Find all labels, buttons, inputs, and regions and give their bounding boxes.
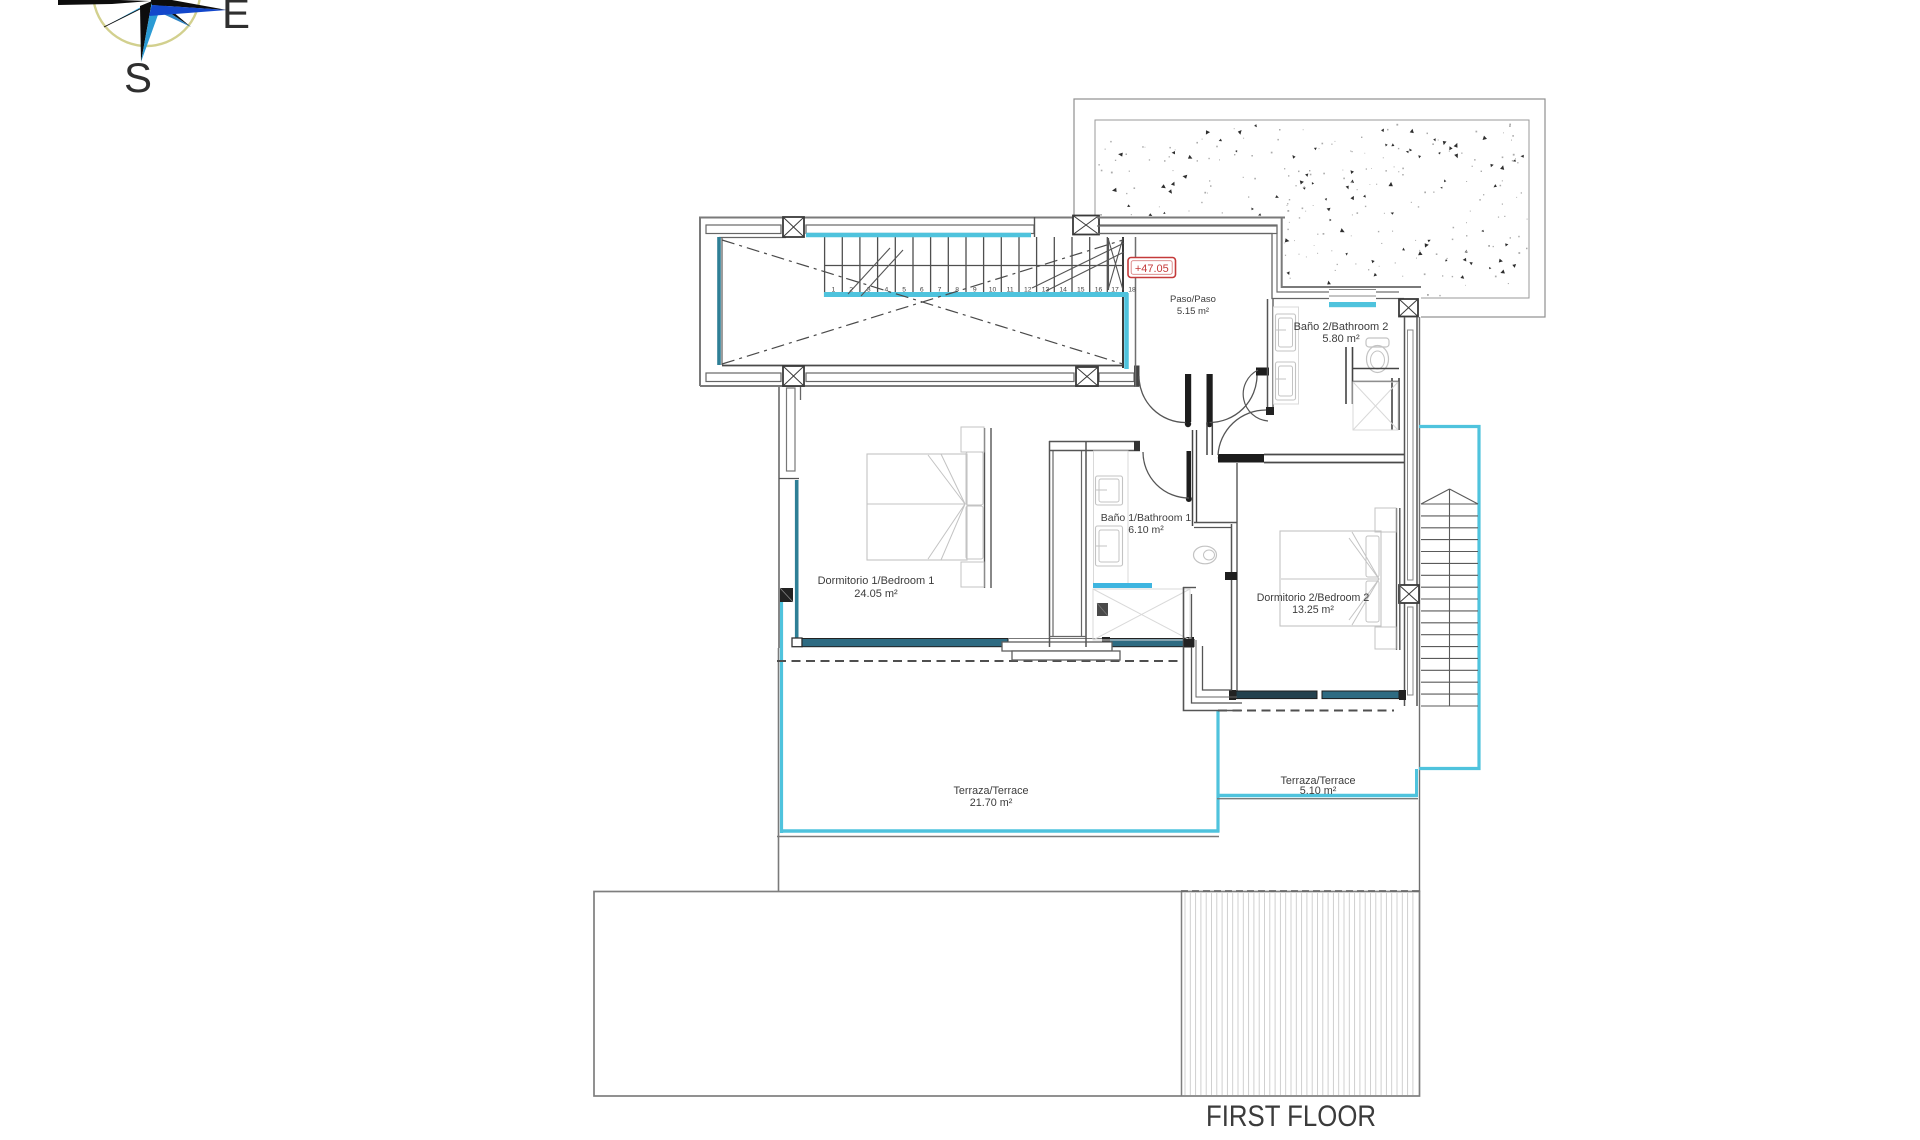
svg-text:6.10 m²: 6.10 m² — [1128, 524, 1164, 536]
svg-text:14: 14 — [1059, 287, 1067, 294]
svg-text:5.80 m²: 5.80 m² — [1322, 333, 1360, 345]
svg-text:6: 6 — [920, 287, 924, 294]
svg-text:8: 8 — [955, 287, 959, 294]
svg-text:Paso/Paso: Paso/Paso — [1170, 294, 1216, 305]
svg-text:24.05 m²: 24.05 m² — [854, 588, 898, 600]
svg-text:13.25 m²: 13.25 m² — [1292, 604, 1334, 616]
svg-text:21.70 m²: 21.70 m² — [970, 797, 1013, 809]
svg-text:S: S — [124, 54, 152, 101]
svg-text:Dormitorio 2/Bedroom 2: Dormitorio 2/Bedroom 2 — [1257, 592, 1370, 604]
svg-text:18: 18 — [1128, 287, 1136, 294]
svg-text:5: 5 — [902, 287, 906, 294]
svg-text:Baño 1/Bathroom 1: Baño 1/Bathroom 1 — [1101, 512, 1192, 524]
svg-text:4: 4 — [885, 287, 889, 294]
svg-text:+47.05: +47.05 — [1135, 263, 1169, 275]
svg-text:Terraza/Terrace: Terraza/Terrace — [953, 785, 1028, 797]
svg-text:1: 1 — [832, 287, 836, 294]
svg-text:FIRST FLOOR: FIRST FLOOR — [1206, 1100, 1376, 1133]
svg-text:10: 10 — [989, 287, 997, 294]
svg-text:5.10 m²: 5.10 m² — [1300, 785, 1337, 797]
svg-text:Dormitorio 1/Bedroom 1: Dormitorio 1/Bedroom 1 — [818, 575, 935, 587]
svg-text:Baño 2/Bathroom 2: Baño 2/Bathroom 2 — [1294, 321, 1389, 333]
svg-text:7: 7 — [938, 287, 942, 294]
svg-text:5.15 m²: 5.15 m² — [1177, 306, 1209, 317]
svg-text:11: 11 — [1007, 287, 1014, 294]
svg-text:12: 12 — [1024, 287, 1032, 294]
svg-text:15: 15 — [1077, 287, 1085, 294]
svg-text:9: 9 — [973, 287, 977, 294]
svg-text:E: E — [222, 0, 250, 37]
svg-text:16: 16 — [1095, 287, 1103, 294]
svg-text:17: 17 — [1111, 287, 1119, 294]
